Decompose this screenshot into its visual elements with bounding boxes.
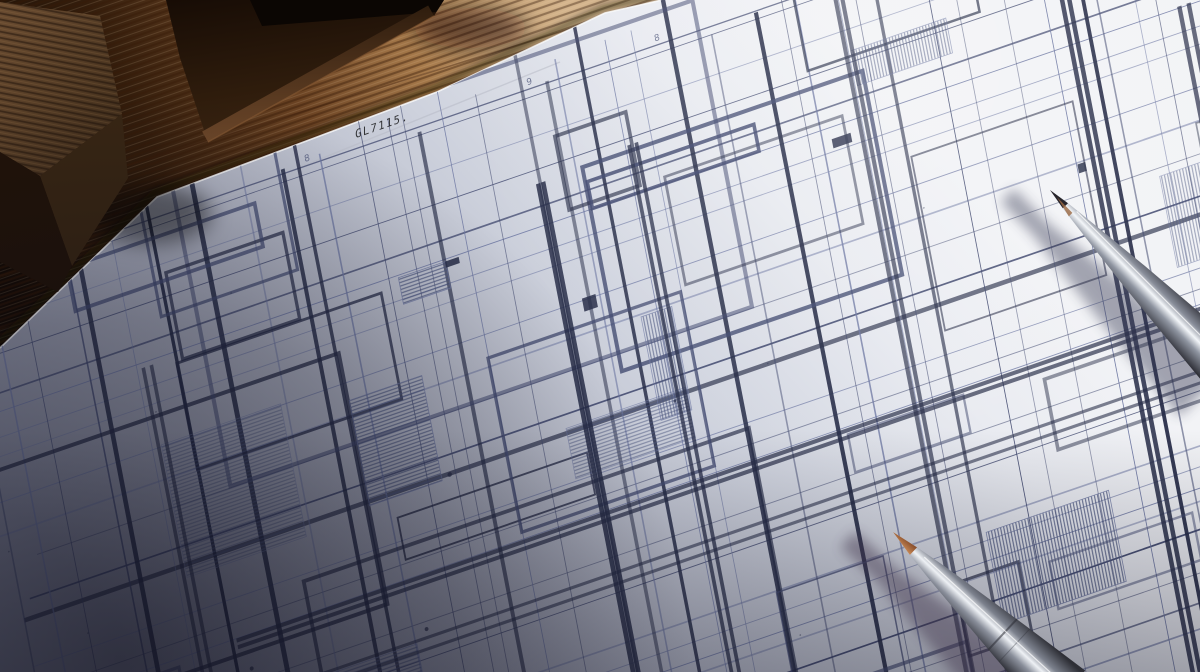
scene: 89868 GL7115.: [0, 0, 1200, 672]
top-glow: [0, 0, 1200, 672]
photo-architectural-blueprint: 89868 GL7115.: [0, 0, 1200, 672]
light-vignette-overlay: [0, 0, 1200, 672]
